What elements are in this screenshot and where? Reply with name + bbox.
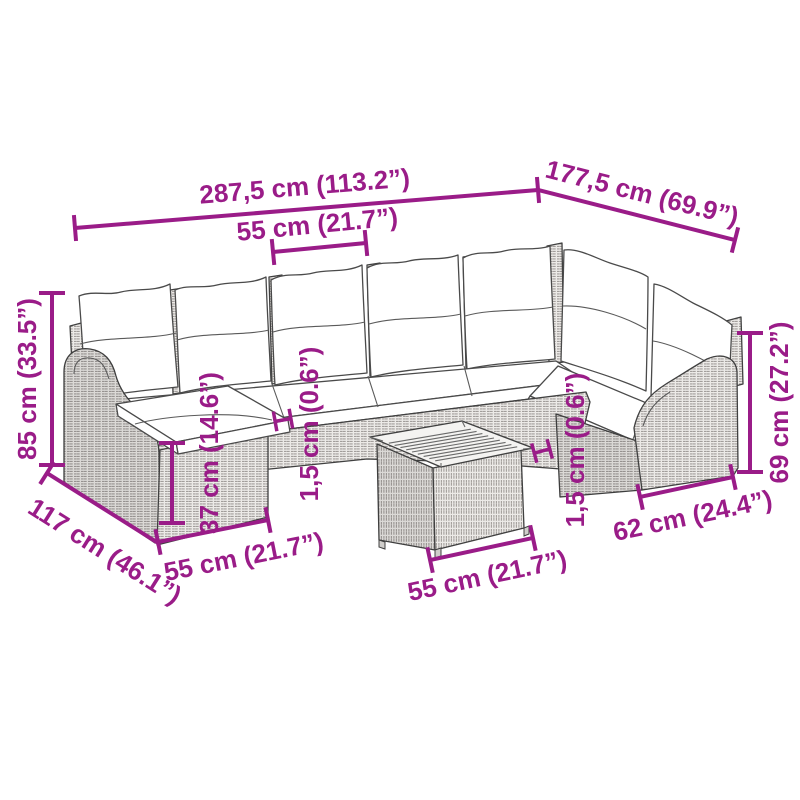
dim-tick [265,507,270,532]
back-cushion-corner [561,250,648,391]
diagram-canvas: 287,5 cm (113.2”) 177,5 cm (69.9”) 55 cm… [0,0,800,800]
sofa-set-dimension-illustration: 287,5 cm (113.2”) 177,5 cm (69.9”) 55 cm… [0,0,800,800]
right-armrest [634,356,738,490]
dim-front-height-label: 37 cm (14.6”) [194,372,224,534]
dim-tick [427,547,432,572]
dim-cushion-gap-right-label: 1,5 cm (0.6”) [560,373,590,528]
dim-total-height: 85 cm (33.5”) [12,293,65,465]
dim-tick [530,525,535,550]
dim-right-side-height: 69 cm (27.2”) [737,322,794,484]
dim-right-seat-width-label: 62 cm (24.4”) [610,484,775,547]
dim-overall-depth-label: 177,5 cm (69.9”) [543,154,742,232]
dim-right-side-height-label: 69 cm (27.2”) [764,322,794,484]
back-cushion-5 [463,246,555,369]
coffee-table [370,421,533,558]
dim-seat-width-line [273,243,366,252]
dim-total-height-label: 85 cm (33.5”) [12,298,42,460]
table-foot [524,526,529,536]
dim-cushion-gap-left-label: 1,5 cm (0.6”) [294,347,324,502]
dim-overall-depth: 177,5 cm (69.9”) [535,153,745,252]
dim-tick [74,215,76,241]
table-foot [379,540,385,549]
dim-seat-width-label: 55 cm (21.7”) [235,201,399,246]
